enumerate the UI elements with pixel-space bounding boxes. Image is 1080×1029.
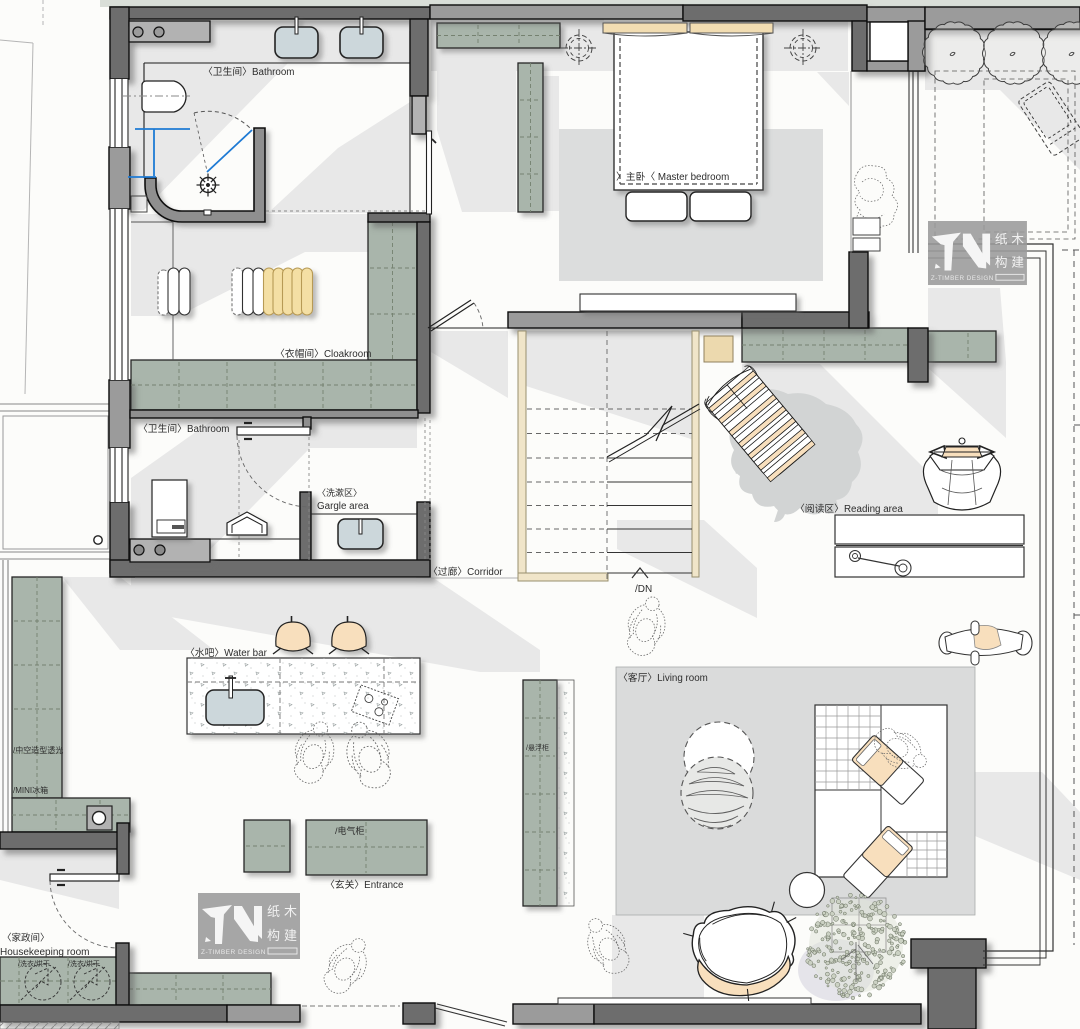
svg-text:Housekeeping room: Housekeeping room [0, 947, 90, 958]
svg-text:木: 木 [1011, 232, 1024, 246]
svg-text:/DN: /DN [635, 584, 652, 595]
svg-text:〈客厅〉Living room: 〈客厅〉Living room [618, 671, 708, 684]
svg-text:木: 木 [284, 904, 297, 919]
svg-text:纸: 纸 [267, 904, 280, 919]
svg-text:/中空造型透光: /中空造型透光 [13, 745, 63, 755]
svg-text:纸: 纸 [995, 232, 1008, 246]
svg-text:〈水吧〉Water bar: 〈水吧〉Water bar [185, 647, 268, 659]
svg-text:Z-TIMBER DESIGN: Z-TIMBER DESIGN [931, 275, 994, 282]
svg-text:〈衣帽间〉Cloakroom: 〈衣帽间〉Cloakroom [275, 347, 371, 360]
svg-text:〈卫生间〉Bathroom: 〈卫生间〉Bathroom [203, 65, 294, 78]
svg-text:〈玄关〉Entrance: 〈玄关〉Entrance [325, 878, 404, 891]
svg-text:/洗衣/烘干: /洗衣/烘干 [68, 959, 100, 968]
svg-text:/悬浮柜: /悬浮柜 [526, 743, 549, 752]
svg-text:〈阅读区〉Reading area: 〈阅读区〉Reading area [795, 502, 903, 515]
svg-text:/电气柜: /电气柜 [335, 825, 365, 836]
svg-text:建: 建 [284, 928, 297, 943]
svg-text:构: 构 [267, 928, 280, 943]
svg-text:构: 构 [995, 256, 1008, 270]
svg-text:〈过廊〉Corridor: 〈过廊〉Corridor [428, 565, 503, 578]
svg-text:Z-TIMBER DESIGN: Z-TIMBER DESIGN [201, 949, 266, 956]
svg-text:〈卫生间〉Bathroom: 〈卫生间〉Bathroom [138, 422, 229, 435]
svg-text:/MINI冰箱: /MINI冰箱 [13, 785, 48, 795]
svg-text:〈家政间〉: 〈家政间〉 [2, 932, 50, 944]
svg-text:〈洗漱区〉: 〈洗漱区〉 [317, 487, 362, 498]
svg-text:建: 建 [1011, 256, 1024, 270]
svg-text:Gargle area: Gargle area [317, 501, 369, 512]
svg-text:/洗衣/烘干: /洗衣/烘干 [18, 959, 50, 968]
svg-text:〉主卧〈 Master bedroom: 〉主卧〈 Master bedroom [616, 170, 729, 183]
